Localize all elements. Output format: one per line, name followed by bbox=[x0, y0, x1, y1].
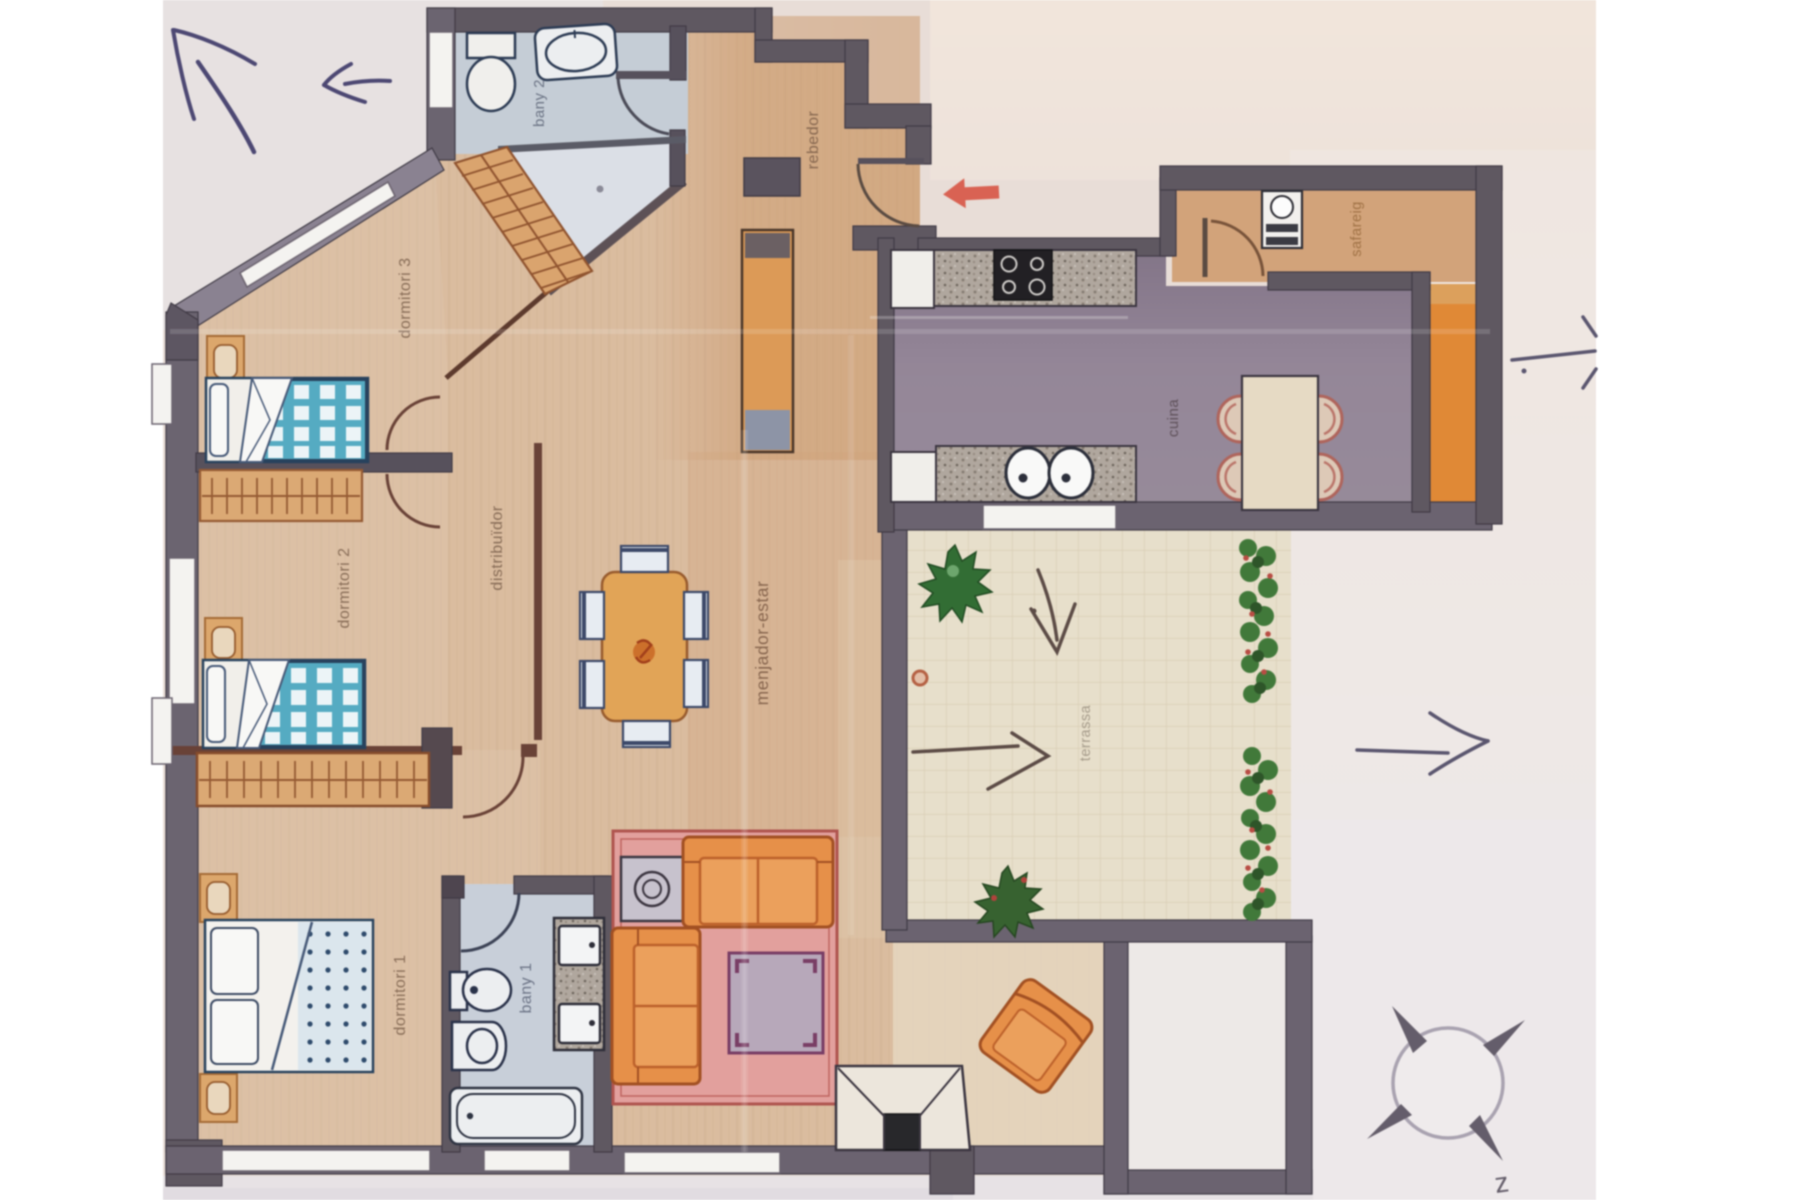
svg-text:menjador-estar: menjador-estar bbox=[752, 581, 772, 706]
svg-text:dormitori 3: dormitori 3 bbox=[397, 257, 414, 338]
svg-text:distribuïdor: distribuïdor bbox=[489, 505, 506, 590]
svg-text:dormitori 2: dormitori 2 bbox=[336, 547, 353, 628]
svg-text:bany 1: bany 1 bbox=[518, 962, 535, 1013]
svg-text:bany 2: bany 2 bbox=[531, 79, 548, 127]
svg-text:terrassa: terrassa bbox=[1078, 704, 1094, 761]
svg-text:safareig: safareig bbox=[1349, 201, 1365, 257]
svg-text:dormitori 1: dormitori 1 bbox=[392, 954, 409, 1035]
svg-text:cuina: cuina bbox=[1165, 399, 1182, 438]
svg-text:rebedor: rebedor bbox=[805, 111, 822, 170]
